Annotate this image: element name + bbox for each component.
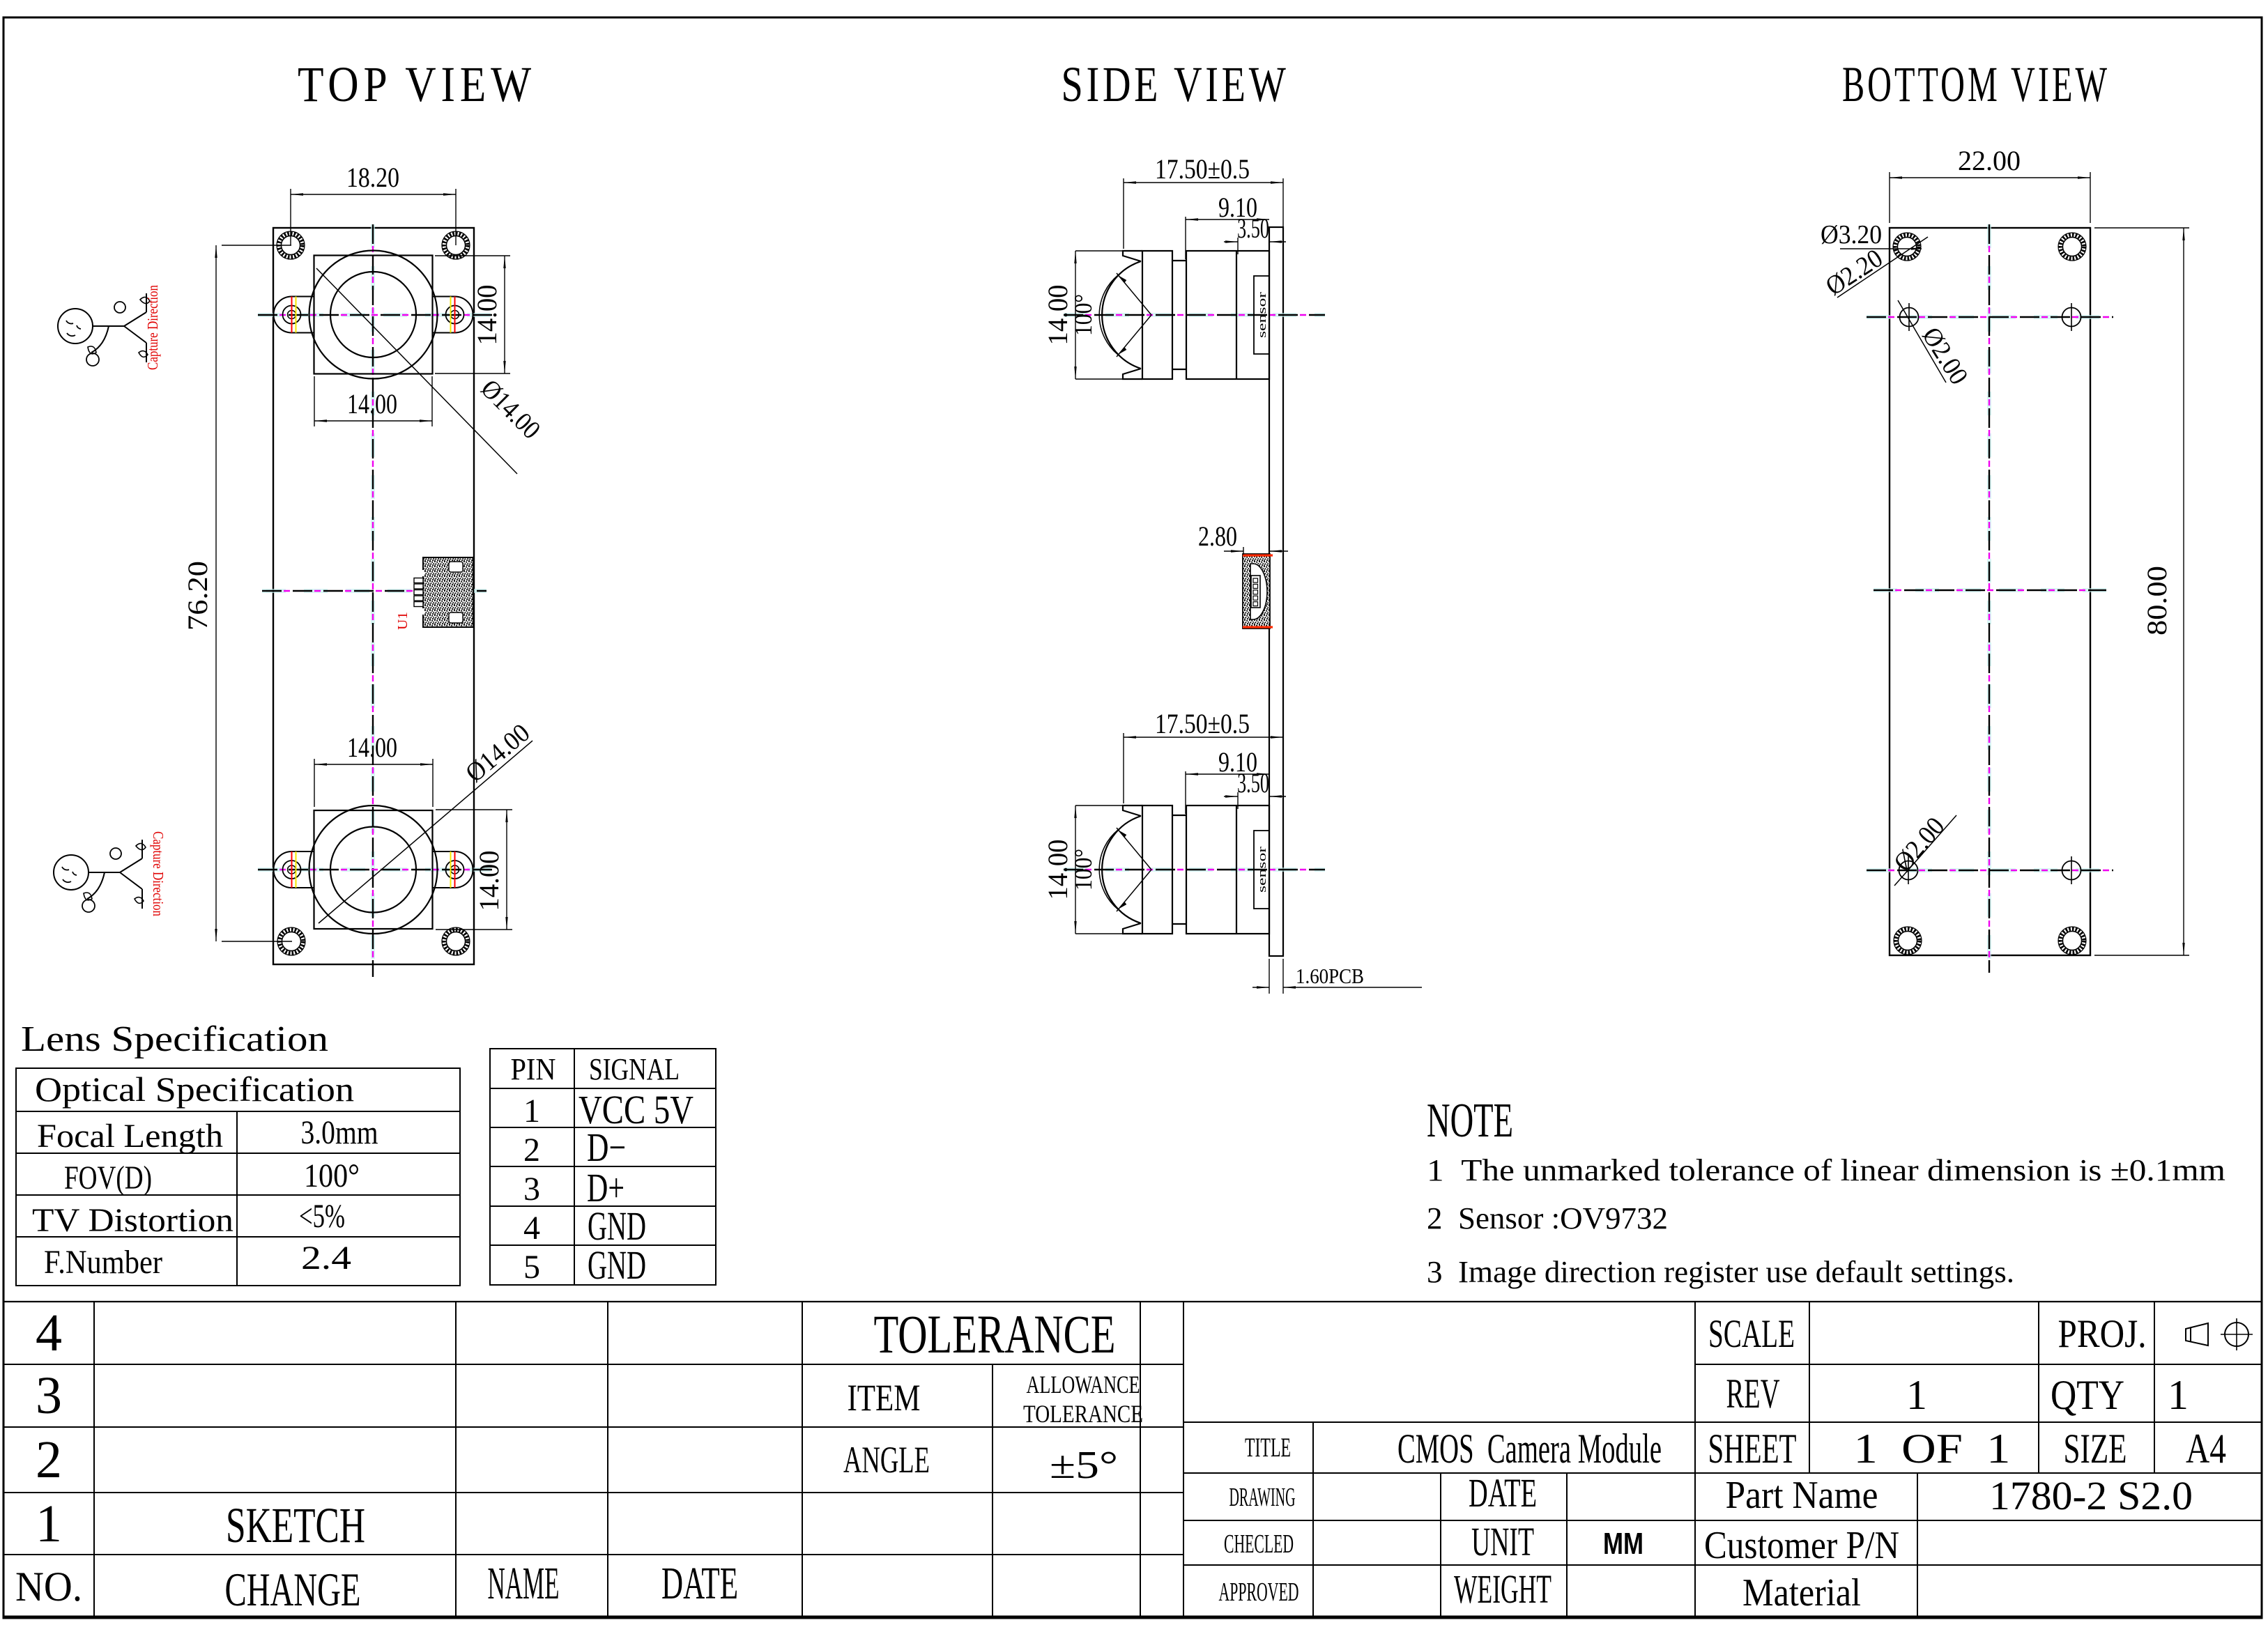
svg-text:17.50±0.5: 17.50±0.5 (1155, 153, 1250, 185)
svg-text:3: 3 (36, 1366, 62, 1425)
svg-text:BOTTOM VIEW: BOTTOM VIEW (1842, 56, 2110, 112)
svg-text:1: 1 (523, 1093, 540, 1130)
svg-text:1: 1 (2168, 1372, 2189, 1418)
svg-text:Optical Specification: Optical Specification (35, 1070, 354, 1109)
svg-text:SIZE: SIZE (2064, 1426, 2127, 1472)
svg-text:14.00: 14.00 (347, 732, 397, 763)
svg-text:TOLERANCE: TOLERANCE (874, 1304, 1116, 1364)
svg-text:1: 1 (1906, 1372, 1927, 1418)
svg-text:DRAWING: DRAWING (1229, 1483, 1296, 1512)
svg-text:1780-2 S2.0: 1780-2 S2.0 (1989, 1473, 2193, 1518)
svg-text:2.4: 2.4 (301, 1240, 351, 1277)
svg-text:17.50±0.5: 17.50±0.5 (1155, 708, 1250, 739)
svg-text:F.Number: F.Number (44, 1244, 162, 1281)
svg-text:APPROVED: APPROVED (1219, 1578, 1299, 1607)
svg-text:CMOS Camera Module: CMOS Camera Module (1397, 1426, 1662, 1472)
svg-text:3 Image direction register us: 3 Image direction register use default s… (1427, 1255, 2014, 1289)
svg-text:4: 4 (523, 1210, 540, 1247)
svg-text:14.00: 14.00 (1042, 840, 1073, 900)
svg-text:D−: D− (587, 1125, 626, 1170)
svg-text:2: 2 (36, 1431, 62, 1489)
svg-text:TV Distortion: TV Distortion (32, 1202, 233, 1239)
svg-text:U1: U1 (395, 612, 411, 630)
svg-text:QTY: QTY (2051, 1372, 2124, 1418)
svg-text:DATE: DATE (661, 1558, 738, 1609)
svg-text:MM: MM (1603, 1527, 1643, 1561)
svg-text:Capture Direction: Capture Direction (150, 831, 167, 916)
svg-text:UNIT: UNIT (1471, 1519, 1534, 1564)
svg-text:80.00: 80.00 (2141, 566, 2173, 635)
svg-text:22.00: 22.00 (1958, 145, 2021, 176)
svg-text:NO.: NO. (15, 1564, 82, 1610)
svg-text:14.00: 14.00 (471, 285, 503, 346)
svg-text:3.50: 3.50 (1237, 213, 1269, 244)
svg-text:14.00: 14.00 (1042, 285, 1073, 346)
svg-text:18.20: 18.20 (346, 162, 399, 193)
svg-text:CHANGE: CHANGE (225, 1563, 361, 1616)
svg-text:SHEET: SHEET (1708, 1426, 1797, 1472)
svg-text:1 OF 1: 1 OF 1 (1854, 1426, 2011, 1472)
svg-text:2.80: 2.80 (1198, 521, 1237, 552)
svg-text:WEIGHT: WEIGHT (1454, 1566, 1551, 1612)
svg-text:Customer P/N: Customer P/N (1704, 1524, 1899, 1567)
svg-text:4: 4 (36, 1304, 62, 1362)
svg-text:FOV(D): FOV(D) (64, 1159, 152, 1196)
svg-text:PROJ.: PROJ. (2058, 1312, 2147, 1356)
svg-text:100°: 100° (1069, 294, 1097, 336)
svg-text:2: 2 (523, 1132, 540, 1169)
svg-text:<5%: <5% (299, 1198, 345, 1235)
svg-text:NAME: NAME (488, 1558, 560, 1609)
svg-text:Part Name: Part Name (1726, 1474, 1878, 1517)
svg-text:2 Sensor :OV9732: 2 Sensor :OV9732 (1427, 1201, 1668, 1235)
svg-text:sensor: sensor (1255, 292, 1269, 338)
svg-text:PIN: PIN (511, 1052, 556, 1086)
svg-text:100°: 100° (304, 1157, 360, 1194)
svg-text:Focal Length: Focal Length (37, 1118, 223, 1155)
svg-text:ITEM: ITEM (848, 1377, 921, 1419)
svg-text:3.50: 3.50 (1237, 767, 1269, 799)
svg-text:14.00: 14.00 (347, 388, 397, 419)
svg-text:100°: 100° (1069, 849, 1097, 891)
svg-text:A4: A4 (2186, 1426, 2226, 1472)
svg-text:SIGNAL: SIGNAL (589, 1052, 680, 1086)
svg-text:1: 1 (36, 1495, 62, 1553)
svg-text:TITLE: TITLE (1245, 1433, 1291, 1463)
svg-text:GND: GND (588, 1242, 646, 1288)
svg-text:76.20: 76.20 (182, 561, 213, 631)
svg-text:3: 3 (523, 1171, 540, 1208)
svg-text:SCALE: SCALE (1708, 1312, 1795, 1356)
svg-text:14.00: 14.00 (473, 851, 505, 911)
svg-text:5: 5 (523, 1249, 540, 1286)
svg-text:3.0mm: 3.0mm (301, 1114, 378, 1151)
svg-text:Material: Material (1742, 1571, 1861, 1614)
svg-text:CHECLED: CHECLED (1224, 1529, 1294, 1559)
svg-text:ALLOWANCE: ALLOWANCE (1027, 1371, 1140, 1398)
svg-text:1 The unmarked tolerance of l: 1 The unmarked tolerance of linear dimen… (1427, 1153, 2225, 1187)
svg-text:REV: REV (1726, 1371, 1780, 1417)
svg-text:SKETCH: SKETCH (226, 1497, 365, 1553)
svg-text:Lens Specification: Lens Specification (21, 1019, 328, 1059)
svg-text:Capture Direction: Capture Direction (144, 285, 161, 370)
svg-text:TOLERANCE: TOLERANCE (1023, 1400, 1143, 1428)
svg-text:SIDE VIEW: SIDE VIEW (1062, 56, 1289, 112)
svg-text:1.60PCB: 1.60PCB (1296, 964, 1364, 988)
svg-text:TOP VIEW: TOP VIEW (298, 56, 536, 112)
svg-text:DATE: DATE (1469, 1470, 1537, 1516)
svg-text:NOTE: NOTE (1427, 1094, 1513, 1148)
svg-text:ANGLE: ANGLE (843, 1439, 930, 1481)
svg-text:±5°: ±5° (1050, 1444, 1118, 1487)
svg-text:sensor: sensor (1255, 847, 1269, 893)
